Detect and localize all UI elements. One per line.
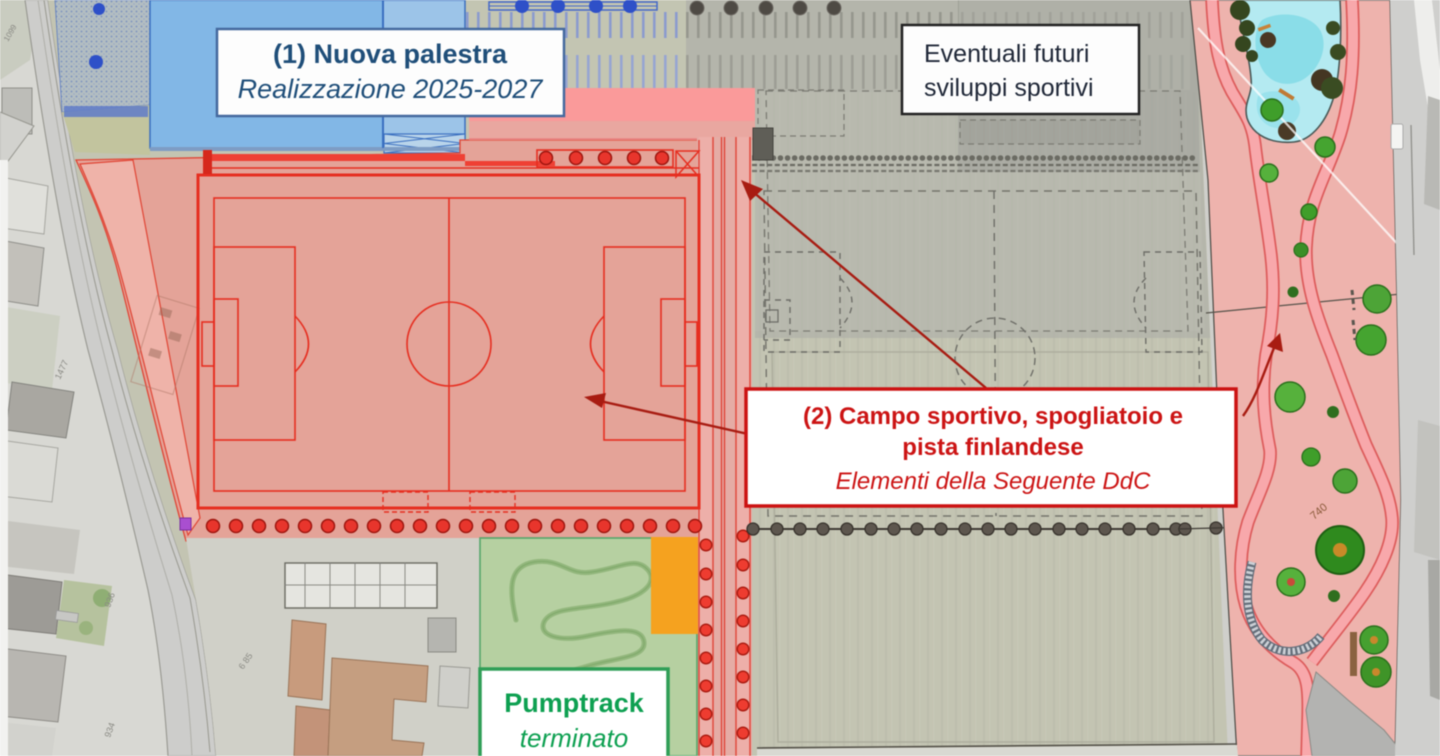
svg-text:Pumptrack: Pumptrack (504, 688, 645, 718)
svg-text:(2) Campo sportivo, spogliatoi: (2) Campo sportivo, spogliatoio e (803, 403, 1183, 430)
svg-text:Elementi della Seguente DdC: Elementi della Seguente DdC (836, 468, 1152, 495)
svg-text:Realizzazione 2025-2027: Realizzazione 2025-2027 (238, 74, 544, 104)
svg-text:(1) Nuova palestra: (1) Nuova palestra (273, 39, 508, 69)
svg-text:Eventuali futuri: Eventuali futuri (924, 40, 1089, 68)
svg-text:terminato: terminato (520, 723, 628, 753)
svg-text:pista finlandese: pista finlandese (902, 434, 1083, 461)
svg-text:sviluppi sportivi: sviluppi sportivi (924, 74, 1094, 102)
